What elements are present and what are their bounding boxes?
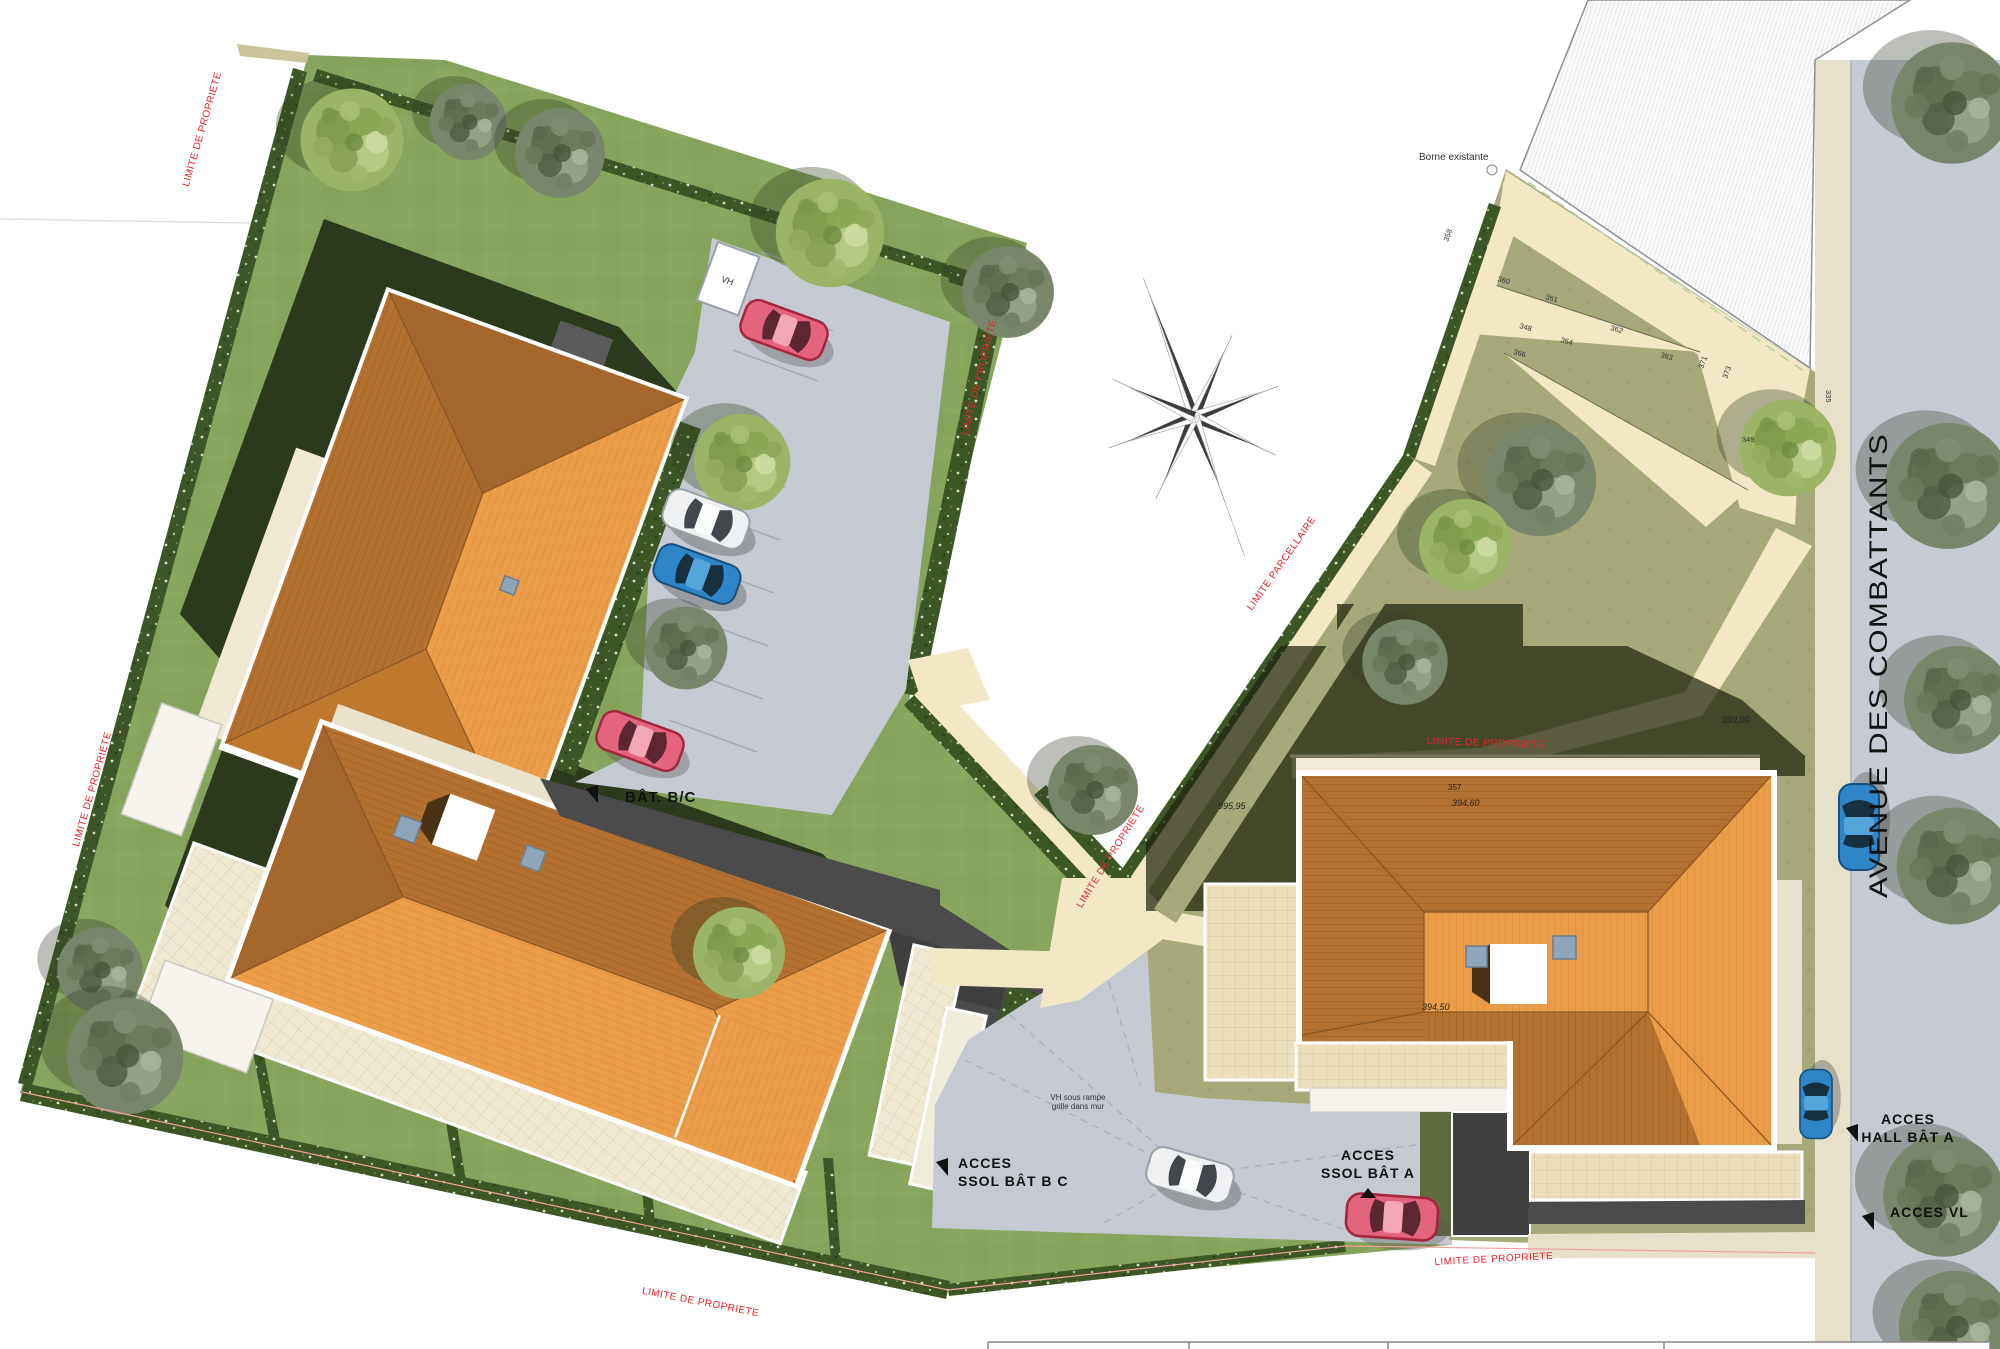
svg-text:AVENUE DES COMBATTANTS: AVENUE DES COMBATTANTS: [1865, 433, 1893, 898]
svg-text:ACCES: ACCES: [1881, 1111, 1935, 1127]
svg-text:VH sous rampe: VH sous rampe: [1050, 1093, 1106, 1102]
svg-text:357: 357: [1448, 783, 1462, 792]
svg-text:HALL BÂT A: HALL BÂT A: [1861, 1128, 1954, 1145]
svg-text:995,95: 995,95: [1218, 801, 1247, 811]
svg-text:394,50: 394,50: [1422, 1002, 1450, 1012]
svg-text:Borne existante: Borne existante: [1419, 152, 1489, 163]
svg-text:394,60: 394,60: [1452, 798, 1480, 808]
svg-text:349: 349: [1742, 435, 1755, 444]
svg-text:SSOL BÂT B C: SSOL BÂT B C: [958, 1172, 1069, 1189]
svg-text:grille dans mur: grille dans mur: [1052, 1102, 1105, 1111]
svg-text:ACCES: ACCES: [958, 1155, 1012, 1171]
svg-text:393,00: 393,00: [1722, 715, 1750, 725]
svg-text:BÂT. B/C: BÂT. B/C: [625, 788, 696, 806]
svg-text:SSOL BÂT A: SSOL BÂT A: [1321, 1164, 1415, 1181]
svg-text:ACCES: ACCES: [1341, 1147, 1395, 1163]
svg-text:335: 335: [1824, 390, 1833, 403]
svg-text:ACCES VL: ACCES VL: [1890, 1204, 1969, 1220]
